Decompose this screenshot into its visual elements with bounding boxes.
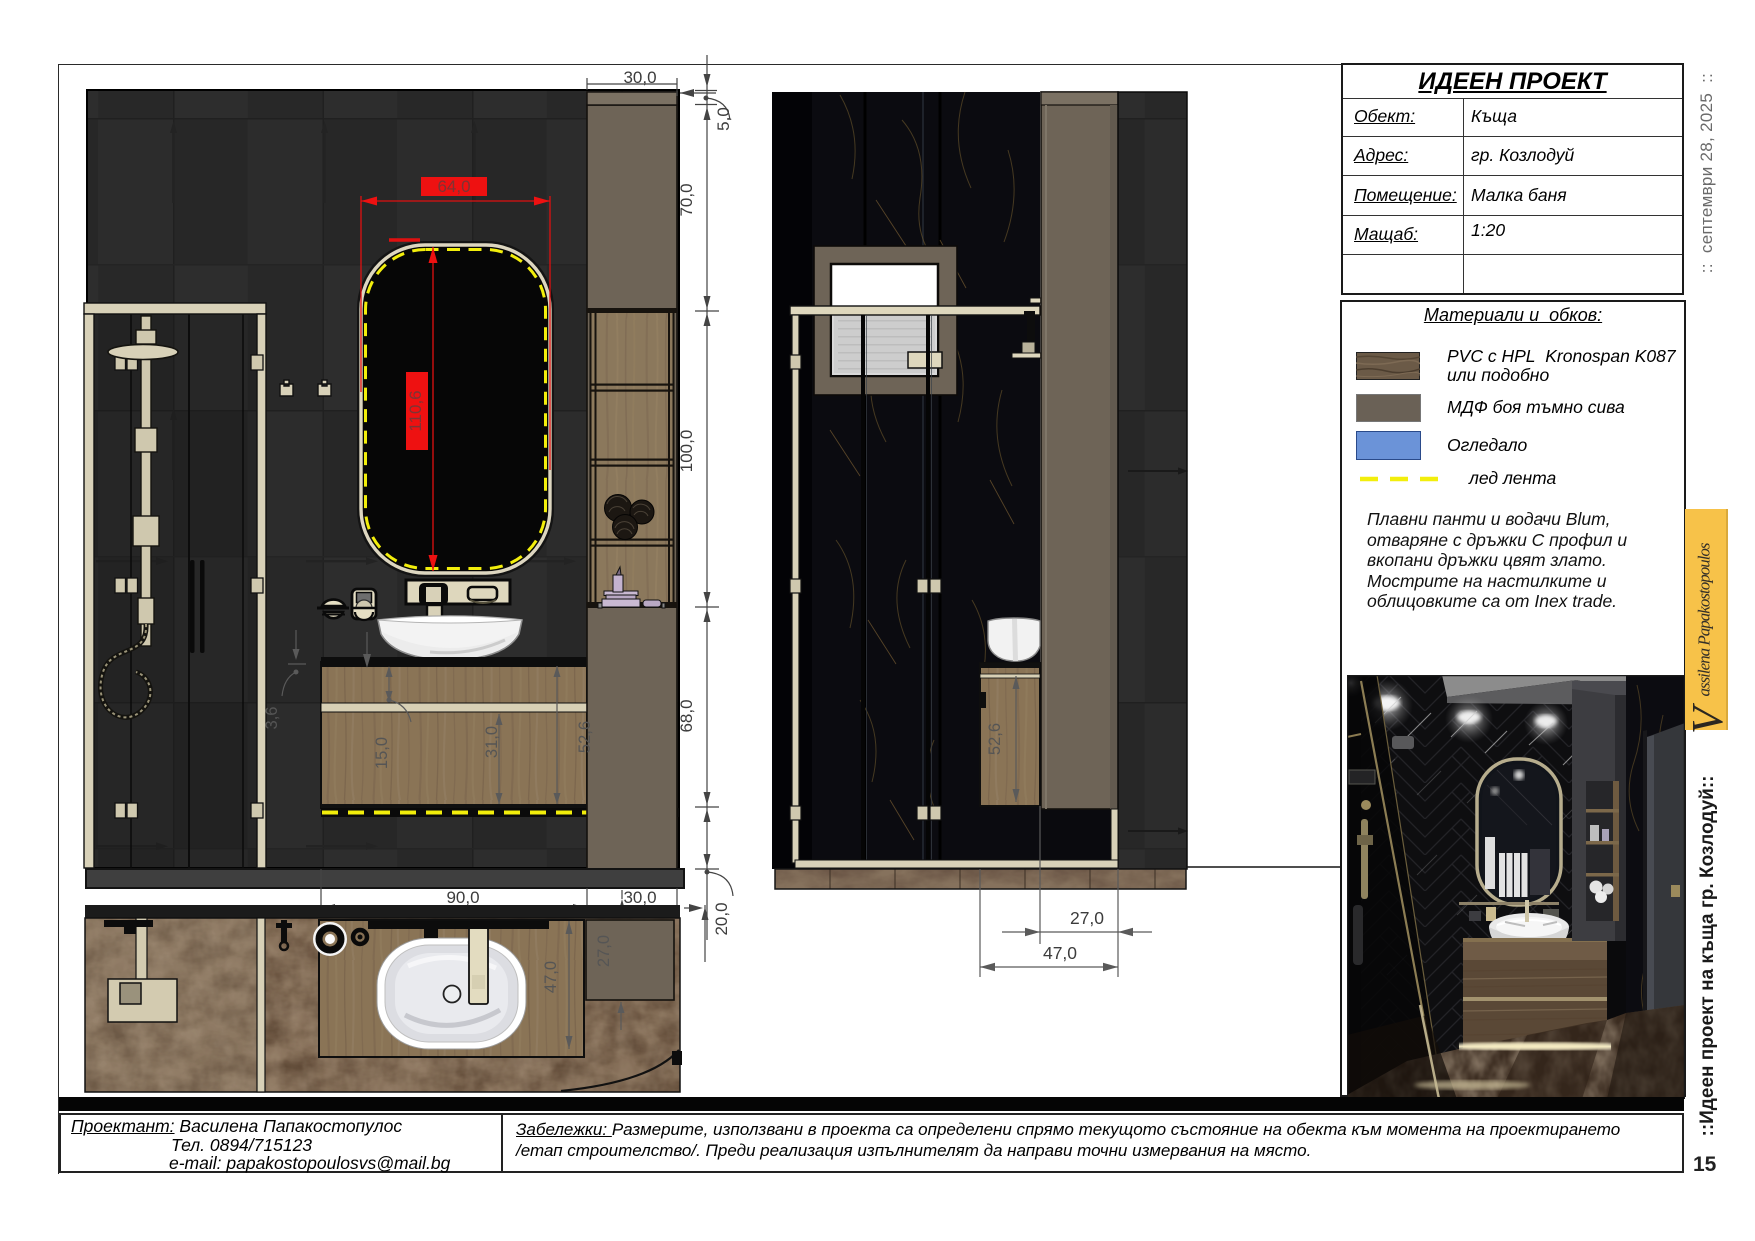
svg-text:30,0: 30,0 [623,68,656,87]
svg-text:30,0: 30,0 [623,888,656,907]
svg-text:31,0: 31,0 [483,726,501,758]
svg-text:47,0: 47,0 [1043,943,1077,963]
svg-text:20,0: 20,0 [712,902,731,935]
svg-text:52,6: 52,6 [986,723,1004,755]
svg-text:110,6: 110,6 [406,390,425,431]
svg-text:90,0: 90,0 [446,888,479,907]
svg-text:64,0: 64,0 [437,177,470,196]
svg-text:70,0: 70,0 [677,183,696,216]
svg-text:27,0: 27,0 [1070,908,1104,928]
svg-text:68,0: 68,0 [677,699,696,732]
svg-text:3,6: 3,6 [263,707,281,730]
svg-text:27,0: 27,0 [595,935,613,967]
svg-text:15,0: 15,0 [373,737,391,769]
svg-text:5,0: 5,0 [714,107,733,131]
svg-text:47,0: 47,0 [542,961,560,993]
svg-text:52,6: 52,6 [576,721,594,753]
svg-text:100,0: 100,0 [677,430,696,473]
